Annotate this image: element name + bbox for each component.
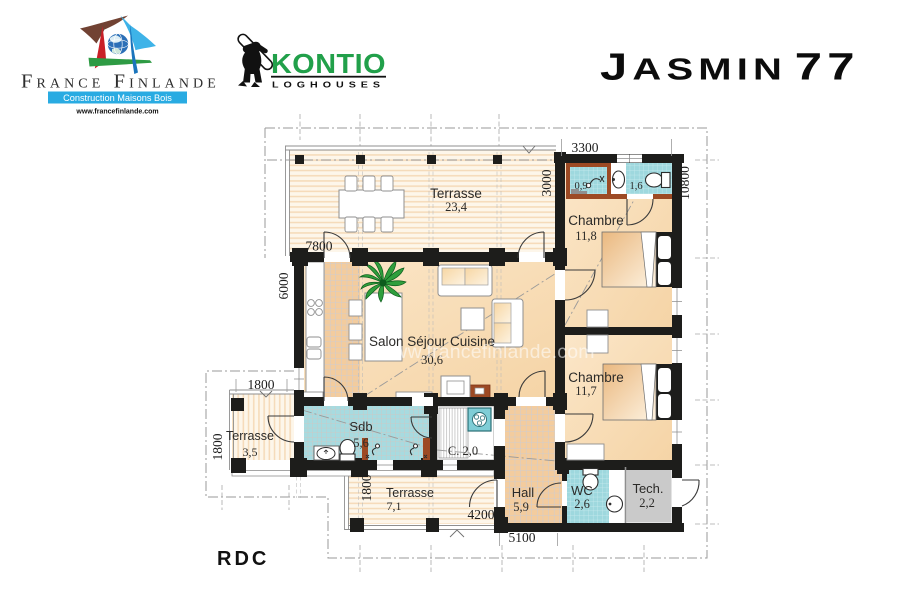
svg-text:7800: 7800: [306, 239, 333, 254]
svg-text:23,4: 23,4: [445, 200, 468, 214]
svg-text:7,1: 7,1: [387, 499, 402, 513]
svg-text:5100: 5100: [509, 530, 536, 545]
svg-text:2,2: 2,2: [639, 496, 655, 510]
svg-text:Construction Maisons Bois: Construction Maisons Bois: [63, 93, 172, 103]
svg-text:www.francefinlande.com: www.francefinlande.com: [75, 109, 158, 116]
svg-text:France Finlande: France Finlande: [21, 71, 217, 93]
svg-text:3,5: 3,5: [243, 445, 258, 459]
svg-text:1,6: 1,6: [629, 181, 642, 192]
svg-text:Terrasse: Terrasse: [386, 486, 434, 500]
svg-text:3000: 3000: [539, 169, 554, 196]
svg-text:LOGHOUSES: LOGHOUSES: [272, 80, 385, 90]
svg-text:6000: 6000: [276, 272, 291, 299]
svg-text:Sdb: Sdb: [349, 419, 372, 434]
svg-text:Chambre: Chambre: [568, 213, 624, 228]
svg-text:1800: 1800: [248, 377, 275, 392]
svg-text:2,6: 2,6: [574, 497, 590, 511]
svg-text:3300: 3300: [572, 140, 599, 155]
svg-text:Tech.: Tech.: [632, 481, 663, 496]
svg-text:4200: 4200: [468, 507, 495, 522]
svg-text:Terrasse: Terrasse: [430, 186, 482, 201]
svg-text:Terrasse: Terrasse: [226, 429, 274, 443]
svg-text:0,9: 0,9: [574, 181, 587, 192]
svg-text:WC: WC: [571, 483, 593, 498]
svg-text:KONTIO: KONTIO: [271, 48, 386, 79]
svg-text:1800: 1800: [210, 433, 225, 460]
svg-text:RDC: RDC: [217, 548, 269, 570]
svg-text:11,7: 11,7: [575, 384, 596, 398]
svg-text:11,8: 11,8: [575, 229, 596, 243]
svg-text:5,6: 5,6: [353, 436, 369, 450]
svg-text:1800: 1800: [359, 474, 374, 501]
svg-text:www.francefinlande.com: www.francefinlande.com: [378, 341, 595, 363]
svg-text:Hall: Hall: [512, 485, 535, 500]
svg-text:JASMIN77: JASMIN77: [600, 46, 860, 88]
svg-text:10800: 10800: [677, 166, 692, 200]
svg-text:Chambre: Chambre: [568, 370, 624, 385]
svg-text:C. 2,0: C. 2,0: [448, 444, 478, 458]
svg-text:5,9: 5,9: [513, 500, 529, 514]
